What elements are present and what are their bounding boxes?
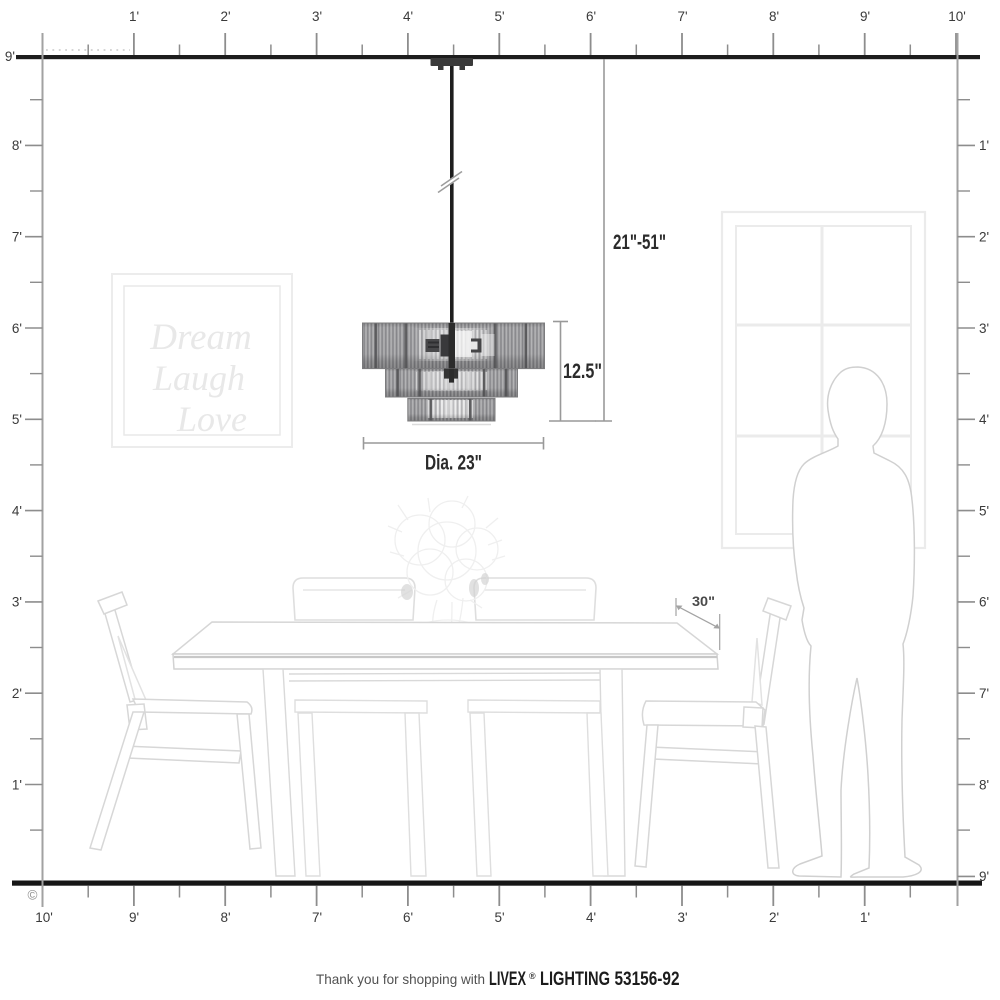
svg-text:10': 10' [948, 9, 966, 24]
svg-text:3': 3' [979, 321, 989, 336]
svg-text:1': 1' [12, 777, 22, 792]
svg-text:5': 5' [979, 503, 989, 518]
svg-text:8': 8' [769, 9, 779, 24]
svg-text:8': 8' [220, 910, 230, 925]
svg-text:2': 2' [769, 910, 779, 925]
svg-text:4': 4' [12, 503, 22, 518]
svg-text:10': 10' [35, 910, 53, 925]
svg-text:30": 30" [692, 593, 715, 609]
svg-text:Dream: Dream [149, 317, 251, 358]
svg-text:Laugh: Laugh [152, 358, 245, 398]
svg-text:7': 7' [312, 910, 322, 925]
svg-text:9': 9' [129, 910, 139, 925]
svg-text:6': 6' [979, 595, 989, 610]
svg-text:4': 4' [979, 412, 989, 427]
svg-text:7': 7' [979, 686, 989, 701]
svg-text:®: ® [529, 971, 536, 981]
svg-text:3': 3' [677, 910, 687, 925]
svg-text:6': 6' [586, 9, 596, 24]
svg-text:1': 1' [979, 138, 989, 153]
svg-text:8': 8' [979, 777, 989, 792]
svg-text:1': 1' [129, 9, 139, 24]
svg-text:5': 5' [12, 412, 22, 427]
svg-text:4': 4' [403, 9, 413, 24]
svg-text:4': 4' [586, 910, 596, 925]
svg-text:2': 2' [12, 686, 22, 701]
svg-text:1': 1' [860, 910, 870, 925]
svg-text:9': 9' [979, 869, 989, 884]
svg-text:5': 5' [494, 9, 504, 24]
svg-text:7': 7' [677, 9, 687, 24]
svg-text:©: © [28, 888, 38, 903]
svg-text:Thank you for shopping with: Thank you for shopping with [316, 971, 485, 987]
svg-text:3': 3' [312, 9, 322, 24]
svg-text:Dia. 23": Dia. 23" [425, 452, 482, 475]
svg-text:6': 6' [403, 910, 413, 925]
svg-text:8': 8' [12, 138, 22, 153]
svg-text:2': 2' [979, 230, 989, 245]
svg-text:12.5": 12.5" [563, 360, 602, 383]
svg-text:9': 9' [5, 49, 15, 64]
svg-text:9': 9' [860, 9, 870, 24]
svg-text:Love: Love [176, 399, 247, 439]
svg-text:LIGHTING: LIGHTING [540, 969, 610, 990]
svg-text:6': 6' [12, 321, 22, 336]
svg-text:5': 5' [494, 910, 504, 925]
svg-text:53156-92: 53156-92 [615, 969, 680, 990]
svg-text:2': 2' [220, 9, 230, 24]
svg-text:21"-51": 21"-51" [613, 231, 666, 254]
svg-text:LIVEX: LIVEX [489, 969, 526, 990]
svg-text:7': 7' [12, 230, 22, 245]
svg-text:3': 3' [12, 595, 22, 610]
